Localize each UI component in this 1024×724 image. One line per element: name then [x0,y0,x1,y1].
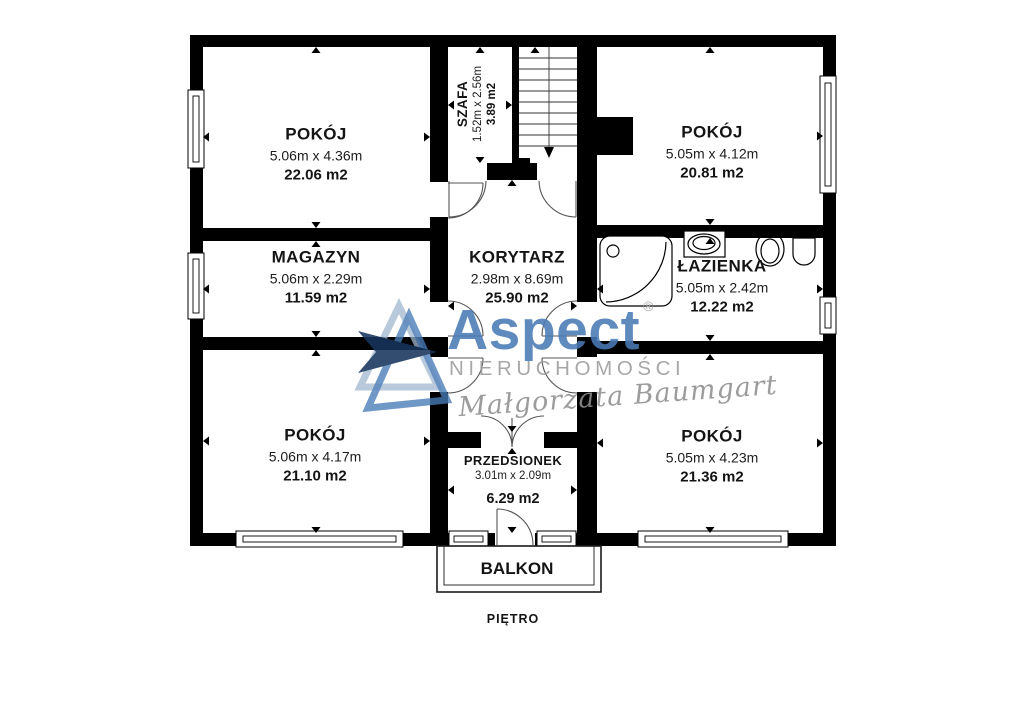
room-dimensions: 5.05m x 2.42m [676,281,769,295]
window-przedsionek-l [449,531,488,547]
room-area: 25.90 m2 [469,291,565,306]
room-label-magazyn: MAGAZYN 5.06m x 2.29m 11.59 m2 [270,249,363,306]
room-label-pokoj-top-left: POKÓJ 5.06m x 4.36m 22.06 m2 [270,126,363,183]
door-szafa [449,181,486,217]
room-label-szafa: SZAFA 1.52m x 2.56m 3.89 m2 [456,66,499,142]
room-area: 22.06 m2 [270,168,363,183]
room-dimensions: 5.06m x 4.17m [269,450,362,464]
floor-title: PIĘTRO [487,612,540,626]
room-area: 3.89 m2 [487,66,499,142]
room-label-pokoj-top-right: POKÓJ 5.05m x 4.12m 20.81 m2 [666,124,759,181]
room-label-pokoj-bottom-left: POKÓJ 5.06m x 4.17m 21.10 m2 [269,427,362,484]
staircase [519,47,577,158]
room-dimensions: 5.05m x 4.23m [666,451,759,465]
room-area: 11.59 m2 [270,291,363,306]
room-name: POKÓJ [269,427,362,444]
room-name: SZAFA [456,66,470,142]
door-staircase [539,181,576,217]
boiler-symbol [793,234,815,265]
shower-symbol [600,236,672,306]
room-name: ŁAZIENKA [676,258,769,275]
door-bottom-left-room [448,358,483,393]
washbasin-symbol [684,231,725,257]
window-right-top [820,76,836,193]
room-label-pokoj-bottom-right: POKÓJ 5.05m x 4.23m 21.36 m2 [666,428,759,485]
room-area: 21.10 m2 [269,469,362,484]
door-bottom-right-room [542,358,577,393]
room-name: POKÓJ [666,428,759,445]
window-bottom-right [638,531,788,547]
room-name: KORYTARZ [469,249,565,266]
room-name: POKÓJ [270,126,363,143]
room-area: 21.36 m2 [666,470,759,485]
room-area: 12.22 m2 [676,300,769,315]
window-left-top [188,90,204,168]
room-dimensions: 3.01m x 2.09m [464,471,562,483]
window-right-bath [820,297,836,334]
room-name: POKÓJ [666,124,759,141]
room-dimensions: 1.52m x 2.56m [472,66,484,142]
window-bottom-left [236,531,403,547]
room-area: 20.81 m2 [666,166,759,181]
window-przedsionek-r [537,531,576,547]
room-name: PRZEDSIONEK [464,454,562,467]
room-name: MAGAZYN [270,249,363,266]
room-dimensions: 5.06m x 2.29m [270,272,363,286]
room-area: 6.29 m2 [464,492,562,507]
room-label-korytarz: KORYTARZ 2.98m x 8.69m 25.90 m2 [469,249,565,306]
room-dimensions: 5.06m x 4.36m [270,149,363,163]
room-label-przedsionek: PRZEDSIONEK 3.01m x 2.09m 6.29 m2 [464,454,562,506]
balcony-label: BALKON [481,559,554,579]
room-dimensions: 5.05m x 4.12m [666,147,759,161]
room-dimensions: 2.98m x 8.69m [469,272,565,286]
floor-plan-page: POKÓJ 5.06m x 4.36m 22.06 m2 SZAFA 1.52m… [0,0,1024,724]
door-double-przedsionek [481,416,544,447]
room-label-lazienka: ŁAZIENKA 5.05m x 2.42m 12.22 m2 [676,258,769,315]
window-left-magazyn [188,253,204,319]
